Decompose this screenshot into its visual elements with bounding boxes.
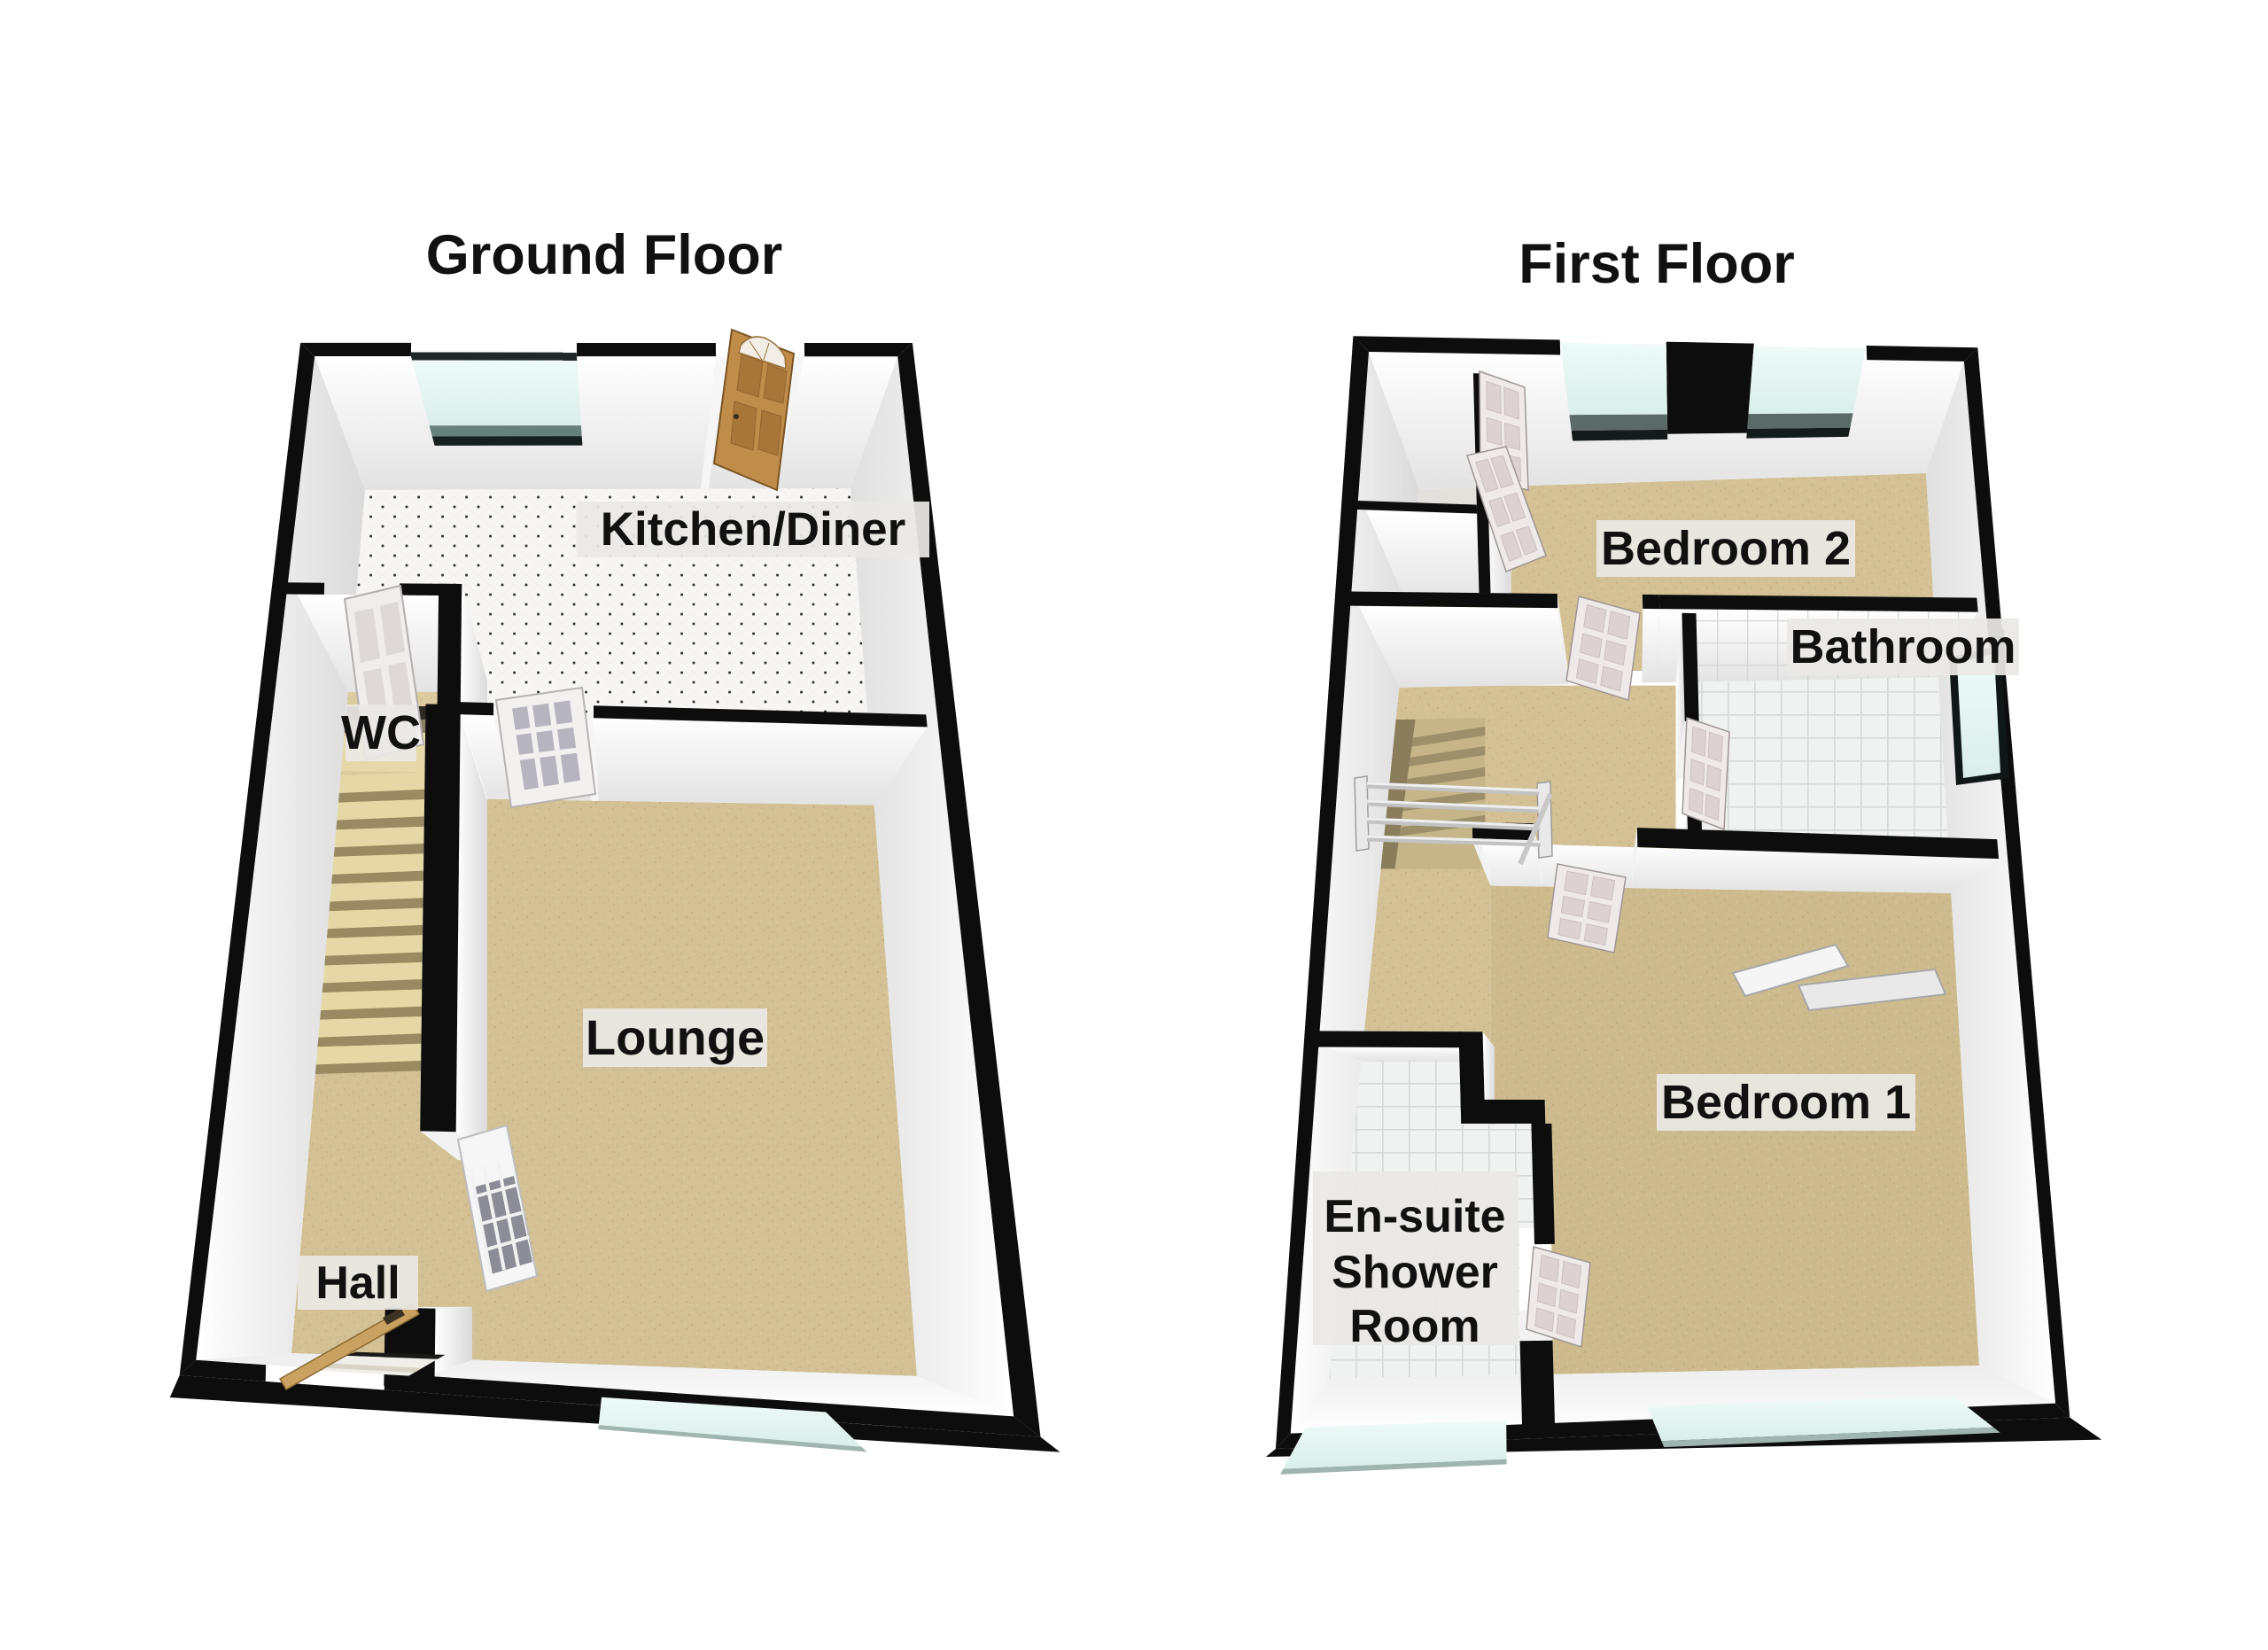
svg-text:En-suite: En-suite [1324,1191,1505,1242]
svg-text:Bathroom: Bathroom [1790,620,2016,673]
svg-text:Bedroom 2: Bedroom 2 [1601,522,1851,575]
svg-text:Ground Floor: Ground Floor [426,224,782,286]
svg-text:First Floor: First Floor [1518,233,1795,295]
svg-text:Room: Room [1349,1301,1480,1352]
svg-text:Shower: Shower [1332,1247,1498,1298]
svg-text:Lounge: Lounge [586,1009,765,1065]
svg-text:Bedroom 1: Bedroom 1 [1661,1076,1911,1129]
svg-text:Kitchen/Diner: Kitchen/Diner [601,503,906,556]
svg-text:Hall: Hall [315,1257,400,1309]
svg-text:WC: WC [341,706,421,759]
